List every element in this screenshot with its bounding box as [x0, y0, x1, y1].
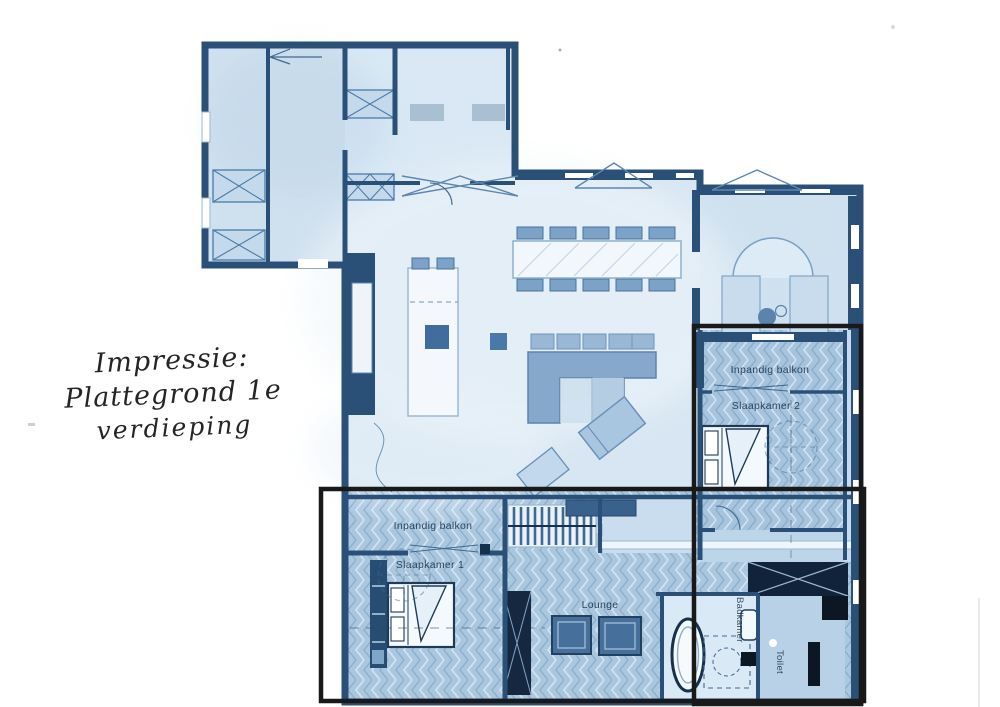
speck-3	[559, 49, 562, 52]
floor-plan: Inpandig balkon Slaapkamer 2 Inpandig ba…	[0, 0, 1000, 707]
closet-d	[346, 174, 394, 200]
label-bottom-balcony: Inpandig balkon	[394, 520, 473, 532]
toilet-cistern	[741, 652, 757, 666]
pouf-2	[599, 617, 641, 655]
side-table	[758, 308, 776, 326]
closet-b	[213, 230, 265, 260]
dining-table	[513, 241, 681, 278]
label-bathroom: Badkamer	[734, 597, 745, 643]
spotlight-dot	[769, 639, 777, 647]
label-bedroom2: Slaapkamer 2	[732, 400, 800, 412]
bed-1	[388, 583, 454, 647]
rightwing-top-wall	[700, 187, 860, 195]
balcony2-window	[752, 334, 794, 340]
label-bedroom1: Slaapkamer 1	[396, 559, 464, 571]
kitchen-cabinet	[352, 283, 372, 373]
balcony1-door-post	[480, 544, 490, 554]
speck-1	[28, 423, 35, 426]
column	[490, 333, 507, 350]
wing-bottom-door	[298, 259, 328, 268]
label-lounge: Lounge	[582, 599, 619, 611]
armchair-right	[790, 276, 828, 338]
speck-2	[891, 25, 895, 29]
pouf-1	[552, 616, 591, 654]
hall-top-wall	[515, 171, 700, 180]
armchair-left	[722, 276, 760, 338]
bed-2	[702, 426, 768, 490]
sofa-back-cushions	[531, 334, 654, 349]
closet-c	[346, 90, 394, 118]
rightwing-right-wall	[848, 196, 862, 330]
dining-set	[513, 227, 681, 291]
scanned-floorplan-page: Impressie: Plattegrond 1e verdieping	[0, 0, 1000, 707]
wardrobe-end	[372, 650, 384, 664]
label-right-balcony: Inpandig balkon	[731, 364, 810, 376]
label-toilet: Toilet	[774, 650, 785, 674]
shaft	[748, 562, 848, 596]
closet-a	[213, 170, 265, 202]
scan-blotch	[210, 50, 390, 190]
shaft-block	[822, 596, 848, 620]
duct	[808, 642, 820, 686]
void-railing	[598, 541, 853, 549]
island-hob	[425, 325, 449, 349]
